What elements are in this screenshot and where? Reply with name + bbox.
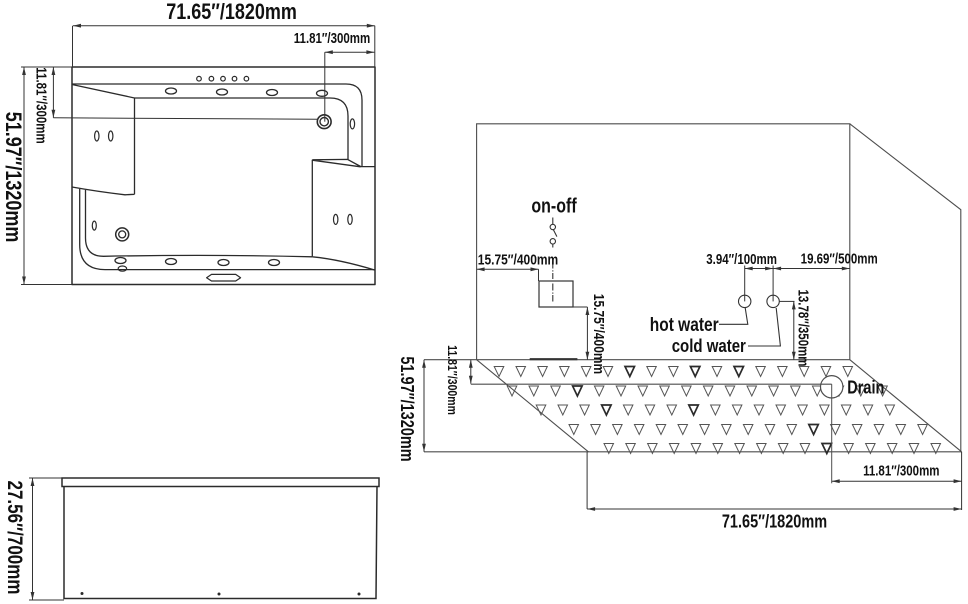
svg-text:15.75″/400mm: 15.75″/400mm (478, 251, 558, 268)
svg-text:Drain: Drain (847, 378, 884, 398)
svg-text:11.81″/300mm: 11.81″/300mm (445, 345, 460, 415)
svg-text:hot water: hot water (650, 313, 719, 335)
svg-text:on-off: on-off (531, 195, 577, 217)
svg-text:19.69″/500mm: 19.69″/500mm (801, 250, 878, 267)
svg-text:11.81″/300mm: 11.81″/300mm (33, 67, 50, 143)
svg-text:cold water: cold water (672, 335, 746, 356)
svg-text:71.65″/1820mm: 71.65″/1820mm (166, 0, 297, 24)
svg-text:71.65″/1820mm: 71.65″/1820mm (722, 512, 827, 532)
svg-text:3.94″/100mm: 3.94″/100mm (706, 251, 777, 268)
svg-text:11.81″/300mm: 11.81″/300mm (863, 462, 939, 479)
svg-text:27.56″/700mm: 27.56″/700mm (2, 481, 25, 595)
svg-text:15.75″/400mm: 15.75″/400mm (591, 294, 608, 374)
svg-text:11.81″/300mm: 11.81″/300mm (294, 30, 370, 47)
svg-text:13.78″/350mm: 13.78″/350mm (795, 289, 812, 366)
svg-text:51.97″/1320mm: 51.97″/1320mm (0, 112, 24, 243)
svg-text:51.97″/1320mm: 51.97″/1320mm (397, 356, 417, 461)
